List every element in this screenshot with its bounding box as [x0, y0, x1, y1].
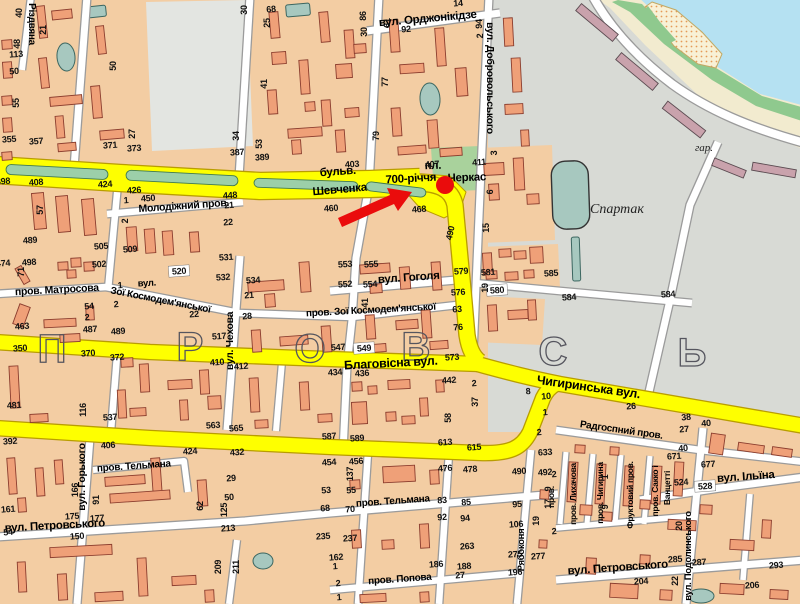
house-number: 70	[345, 504, 355, 515]
building	[299, 60, 310, 95]
house-number: 371	[103, 140, 118, 151]
house-number: 125	[219, 503, 229, 517]
house-number: 106	[509, 519, 524, 530]
house-number: 528	[698, 481, 713, 492]
house-number: 490	[512, 466, 527, 477]
building	[503, 18, 513, 46]
building	[255, 420, 268, 429]
house-number: 474	[0, 258, 11, 269]
house-number: 63	[452, 304, 462, 315]
house-number: 54	[3, 527, 13, 538]
building	[511, 58, 522, 92]
house-number: 580	[490, 285, 505, 296]
stadium	[551, 160, 590, 229]
street-label: пров. Лихачова	[568, 463, 578, 525]
house-number: 406	[101, 440, 116, 451]
building	[420, 398, 429, 416]
building	[402, 416, 415, 425]
building	[484, 162, 505, 175]
house-number: 509	[123, 244, 138, 255]
building	[336, 63, 353, 78]
building	[58, 142, 77, 152]
house-number: 434	[328, 367, 343, 378]
house-number: 94	[460, 513, 470, 524]
house-number: 287	[692, 557, 707, 568]
house-number: 27	[127, 129, 137, 139]
district-letter: О	[294, 327, 325, 371]
house-number: 177	[90, 513, 105, 524]
house-number: 263	[460, 541, 475, 552]
building	[720, 583, 744, 594]
house-number: 350	[13, 343, 28, 354]
building	[272, 52, 287, 65]
house-number: 552	[338, 279, 353, 290]
house-number: 450	[141, 193, 156, 204]
building	[419, 524, 429, 548]
house-number: 94	[474, 19, 484, 29]
house-number: 481	[7, 400, 22, 411]
building	[265, 294, 276, 308]
house-number: 584	[661, 289, 676, 300]
house-number: 424	[183, 446, 198, 457]
house-number: 547	[331, 342, 346, 353]
house-number: 91	[91, 495, 101, 505]
building	[420, 592, 430, 602]
building	[52, 9, 73, 20]
building	[55, 196, 70, 233]
house-number: 211	[231, 560, 241, 574]
house-number: 581	[481, 267, 496, 278]
house-number: 293	[769, 560, 784, 571]
house-number: 487	[83, 324, 98, 335]
house-number: 456	[349, 456, 364, 467]
building	[335, 130, 346, 153]
house-number: 387	[230, 147, 245, 158]
building	[168, 379, 192, 389]
house-number: 22	[189, 309, 199, 320]
house-number: 41	[259, 79, 269, 89]
house-number: 28	[242, 311, 252, 322]
building	[514, 251, 526, 260]
house-number: 30	[239, 5, 249, 15]
house-number: 50	[224, 492, 234, 503]
house-number: 555	[364, 259, 379, 270]
street-label: вул.	[137, 278, 156, 290]
house-number: 34	[231, 131, 241, 141]
house-number: 161	[1, 504, 16, 515]
house-number: 48	[12, 39, 22, 49]
building	[762, 520, 772, 538]
pond	[286, 3, 311, 17]
house-number: 517	[212, 331, 227, 342]
house-number: 10	[541, 391, 551, 402]
house-number: 25	[262, 18, 272, 28]
house-number: 38	[681, 412, 691, 423]
house-number: 53	[254, 139, 264, 149]
destination-dot	[436, 176, 454, 194]
district-letter: Р	[177, 325, 204, 369]
house-number: 454	[322, 457, 337, 468]
house-number: 275	[508, 549, 523, 560]
house-number: 21	[244, 290, 254, 301]
building	[54, 460, 64, 484]
building	[67, 270, 76, 278]
district-letter: С	[539, 330, 568, 374]
building	[351, 402, 367, 425]
building	[527, 300, 536, 320]
building	[208, 396, 222, 410]
house-number: 15	[481, 223, 491, 233]
house-number: 520	[172, 266, 187, 277]
house-number: 55	[11, 98, 21, 108]
building	[354, 44, 367, 54]
house-number: 150	[70, 531, 85, 542]
house-number: 408	[29, 177, 44, 188]
building	[288, 127, 323, 138]
house-number: 237	[343, 533, 358, 544]
empty-block	[146, 0, 253, 151]
house-number: 442	[442, 375, 457, 386]
house-number: 432	[230, 447, 245, 458]
house-number: 677	[701, 459, 716, 470]
building	[130, 408, 146, 417]
building	[770, 590, 788, 600]
district-letter: Ь	[678, 331, 707, 375]
house-number: 554	[363, 279, 378, 290]
street-label: пров. Сакко і	[650, 466, 660, 517]
house-number: 587	[322, 431, 337, 442]
house-number: 41	[360, 298, 370, 308]
building	[267, 90, 278, 115]
building	[700, 505, 712, 515]
house-number: 576	[451, 287, 466, 298]
house-number: 436	[355, 368, 370, 379]
house-number: 92	[401, 24, 411, 35]
house-number: 85	[461, 497, 471, 508]
house-number: 54	[84, 301, 94, 312]
house-number: 671	[667, 451, 682, 462]
building	[527, 194, 540, 205]
street-label: вул. Подолинського	[683, 511, 694, 601]
building	[505, 272, 518, 281]
house-number: 95	[512, 499, 522, 510]
building	[730, 539, 754, 550]
building	[18, 498, 27, 513]
building	[521, 130, 530, 146]
house-number: 615	[467, 442, 482, 453]
house-number: 68	[320, 503, 330, 514]
house-number: 613	[438, 437, 453, 448]
house-number: 392	[3, 436, 18, 447]
house-number: 1	[600, 474, 610, 479]
city-map[interactable]: ПРОВСЬвул. Орджонікідзебульв.Шевченкапл.…	[0, 0, 800, 604]
building	[344, 30, 355, 59]
building	[640, 500, 650, 510]
building	[137, 558, 148, 596]
building	[299, 262, 311, 293]
house-number: 68	[266, 4, 276, 15]
building	[144, 229, 156, 254]
house-number: 412	[234, 361, 249, 372]
pond	[571, 237, 581, 281]
house-number: 460	[324, 203, 339, 214]
building	[499, 249, 511, 258]
building	[508, 309, 528, 319]
house-number: 584	[562, 292, 577, 303]
building	[318, 414, 332, 423]
house-number: 186	[429, 559, 444, 570]
house-number: 53	[321, 485, 331, 496]
pond	[253, 553, 273, 569]
house-number: 19	[531, 516, 541, 526]
building	[505, 104, 523, 115]
building	[189, 232, 199, 253]
house-number: 166	[70, 483, 80, 497]
house-number: 57	[35, 205, 45, 215]
house-number: 79	[371, 131, 381, 141]
house-number: 534	[246, 275, 261, 286]
house-number: 22	[223, 217, 233, 228]
street-label: вул. Горького	[76, 443, 88, 510]
house-number: 213	[221, 523, 236, 534]
house-number: 492	[538, 467, 553, 478]
house-number: 22	[670, 576, 680, 586]
building	[3, 118, 13, 133]
building	[427, 120, 439, 149]
house-number: 277	[531, 551, 546, 562]
street-label: Фруктовий пров.	[625, 461, 635, 528]
building	[205, 590, 215, 602]
house-number: 537	[103, 412, 118, 423]
house-number: 40	[701, 418, 711, 429]
building	[383, 465, 416, 483]
building	[58, 262, 68, 271]
building	[440, 147, 463, 157]
building	[400, 63, 425, 74]
house-number: 9	[600, 504, 610, 509]
house-number: 55	[346, 485, 356, 496]
building	[17, 562, 27, 592]
building	[365, 315, 376, 340]
building	[368, 386, 377, 394]
house-number: 116	[78, 403, 88, 417]
street-label: Ванцетті	[662, 471, 672, 505]
house-number: 206	[745, 580, 760, 591]
building	[610, 447, 619, 455]
street-label: пров. Чигирина	[595, 462, 605, 524]
house-number: 463	[15, 321, 30, 332]
street-label: Різдвяна	[26, 3, 37, 46]
house-number: 92	[437, 512, 447, 523]
house-number: 19	[480, 283, 490, 293]
building	[139, 364, 149, 392]
house-number: 62	[195, 501, 205, 511]
building	[539, 540, 547, 548]
house-number: 137	[345, 467, 355, 481]
house-number: 209	[213, 560, 223, 574]
building	[292, 140, 302, 155]
house-number: 27	[679, 424, 689, 435]
house-number: 235	[316, 531, 331, 542]
house-number: 30	[359, 27, 369, 37]
building	[100, 129, 125, 140]
house-number: 403	[345, 159, 360, 170]
building	[321, 100, 332, 127]
building	[345, 108, 360, 118]
house-number: 355	[2, 134, 17, 145]
house-number: 27	[455, 570, 465, 581]
house-number: 411	[472, 157, 487, 168]
house-number: 549	[357, 343, 372, 354]
house-number: 505	[94, 241, 109, 252]
house-number: 17	[543, 499, 553, 509]
house-number: 633	[538, 447, 553, 458]
house-number: 175	[65, 511, 80, 522]
house-number: 410	[210, 357, 225, 368]
house-number: 40	[14, 8, 24, 18]
place-label: гар.	[695, 142, 713, 154]
building	[382, 540, 394, 550]
house-number: 489	[111, 326, 126, 337]
building	[530, 247, 544, 264]
house-number: 498	[22, 257, 37, 268]
house-number: 398	[0, 176, 11, 187]
house-number: 573	[445, 352, 460, 363]
house-number: 373	[127, 143, 142, 154]
house-number: 29	[226, 473, 236, 484]
building	[249, 378, 260, 412]
district-letter: П	[38, 327, 67, 371]
house-number: 502	[92, 259, 107, 270]
house-number: 424	[98, 179, 113, 190]
house-number: 563	[206, 420, 221, 431]
house-number: 20	[674, 521, 684, 531]
building	[360, 593, 386, 602]
building	[398, 145, 426, 155]
house-number: 407	[425, 159, 440, 170]
house-number: 357	[29, 136, 44, 147]
house-number: 21	[38, 25, 48, 35]
house-number: 476	[438, 463, 453, 474]
house-number: 3	[489, 150, 499, 155]
house-number: 58	[443, 413, 453, 423]
house-number: 204	[634, 576, 649, 587]
building	[35, 468, 45, 496]
building	[575, 445, 585, 454]
building	[487, 305, 497, 331]
house-number: 2	[475, 33, 485, 38]
house-number: 532	[216, 272, 231, 283]
house-number: 77	[380, 77, 390, 87]
building	[117, 390, 126, 418]
building	[251, 330, 262, 353]
place-label: Спартак	[590, 202, 644, 217]
building	[30, 414, 48, 423]
building	[55, 116, 65, 139]
building	[305, 102, 316, 112]
house-number: 50	[108, 61, 118, 71]
house-number: 196	[508, 567, 523, 578]
building	[162, 231, 174, 256]
house-number: 83	[437, 495, 447, 506]
building	[391, 108, 402, 137]
building	[352, 382, 362, 392]
house-number: 531	[219, 252, 234, 263]
house-number: 372	[110, 352, 125, 363]
house-number: 489	[23, 235, 38, 246]
building	[580, 505, 593, 516]
building	[95, 591, 123, 601]
house-number: 86	[358, 11, 368, 21]
building	[709, 433, 726, 455]
house-number: 14	[453, 0, 463, 9]
building	[179, 400, 188, 420]
building	[71, 258, 81, 268]
house-number: 389	[255, 152, 270, 163]
building	[2, 152, 13, 161]
house-number: 285	[668, 554, 683, 565]
house-number: 370	[81, 348, 96, 359]
house-number: 565	[229, 423, 244, 434]
house-number: 6	[485, 189, 495, 194]
house-number: 589	[350, 433, 365, 444]
house-number: 21	[224, 200, 234, 211]
house-number: 579	[454, 266, 469, 277]
building	[199, 370, 209, 394]
house-number: 585	[544, 268, 559, 279]
house-number: 9	[543, 486, 553, 491]
building	[430, 340, 449, 349]
building	[660, 590, 673, 601]
building	[172, 575, 196, 585]
building	[81, 199, 96, 236]
building	[455, 68, 468, 97]
house-number: 426	[127, 185, 142, 196]
building	[57, 574, 67, 600]
building	[513, 158, 525, 190]
map-canvas[interactable]: ПРОВСЬвул. Орджонікідзебульв.Шевченкапл.…	[0, 0, 800, 604]
building	[524, 270, 534, 279]
building	[2, 40, 13, 50]
house-number: 478	[463, 464, 478, 475]
house-number: 71	[16, 267, 26, 277]
house-number: 61	[382, 18, 392, 28]
building	[388, 379, 410, 389]
house-number: 50	[9, 66, 19, 77]
house-number: 37	[470, 397, 480, 407]
building	[386, 412, 396, 422]
house-number: 26	[626, 401, 636, 412]
street-label: вул. Добровольського	[484, 22, 496, 134]
house-number: 76	[453, 322, 463, 333]
house-number: 448	[223, 190, 238, 201]
house-number: 553	[338, 259, 353, 270]
house-number: 468	[412, 204, 427, 215]
building	[299, 382, 309, 410]
house-number: 2	[120, 218, 130, 223]
house-number: 113	[9, 49, 24, 60]
house-number: 524	[674, 477, 689, 488]
